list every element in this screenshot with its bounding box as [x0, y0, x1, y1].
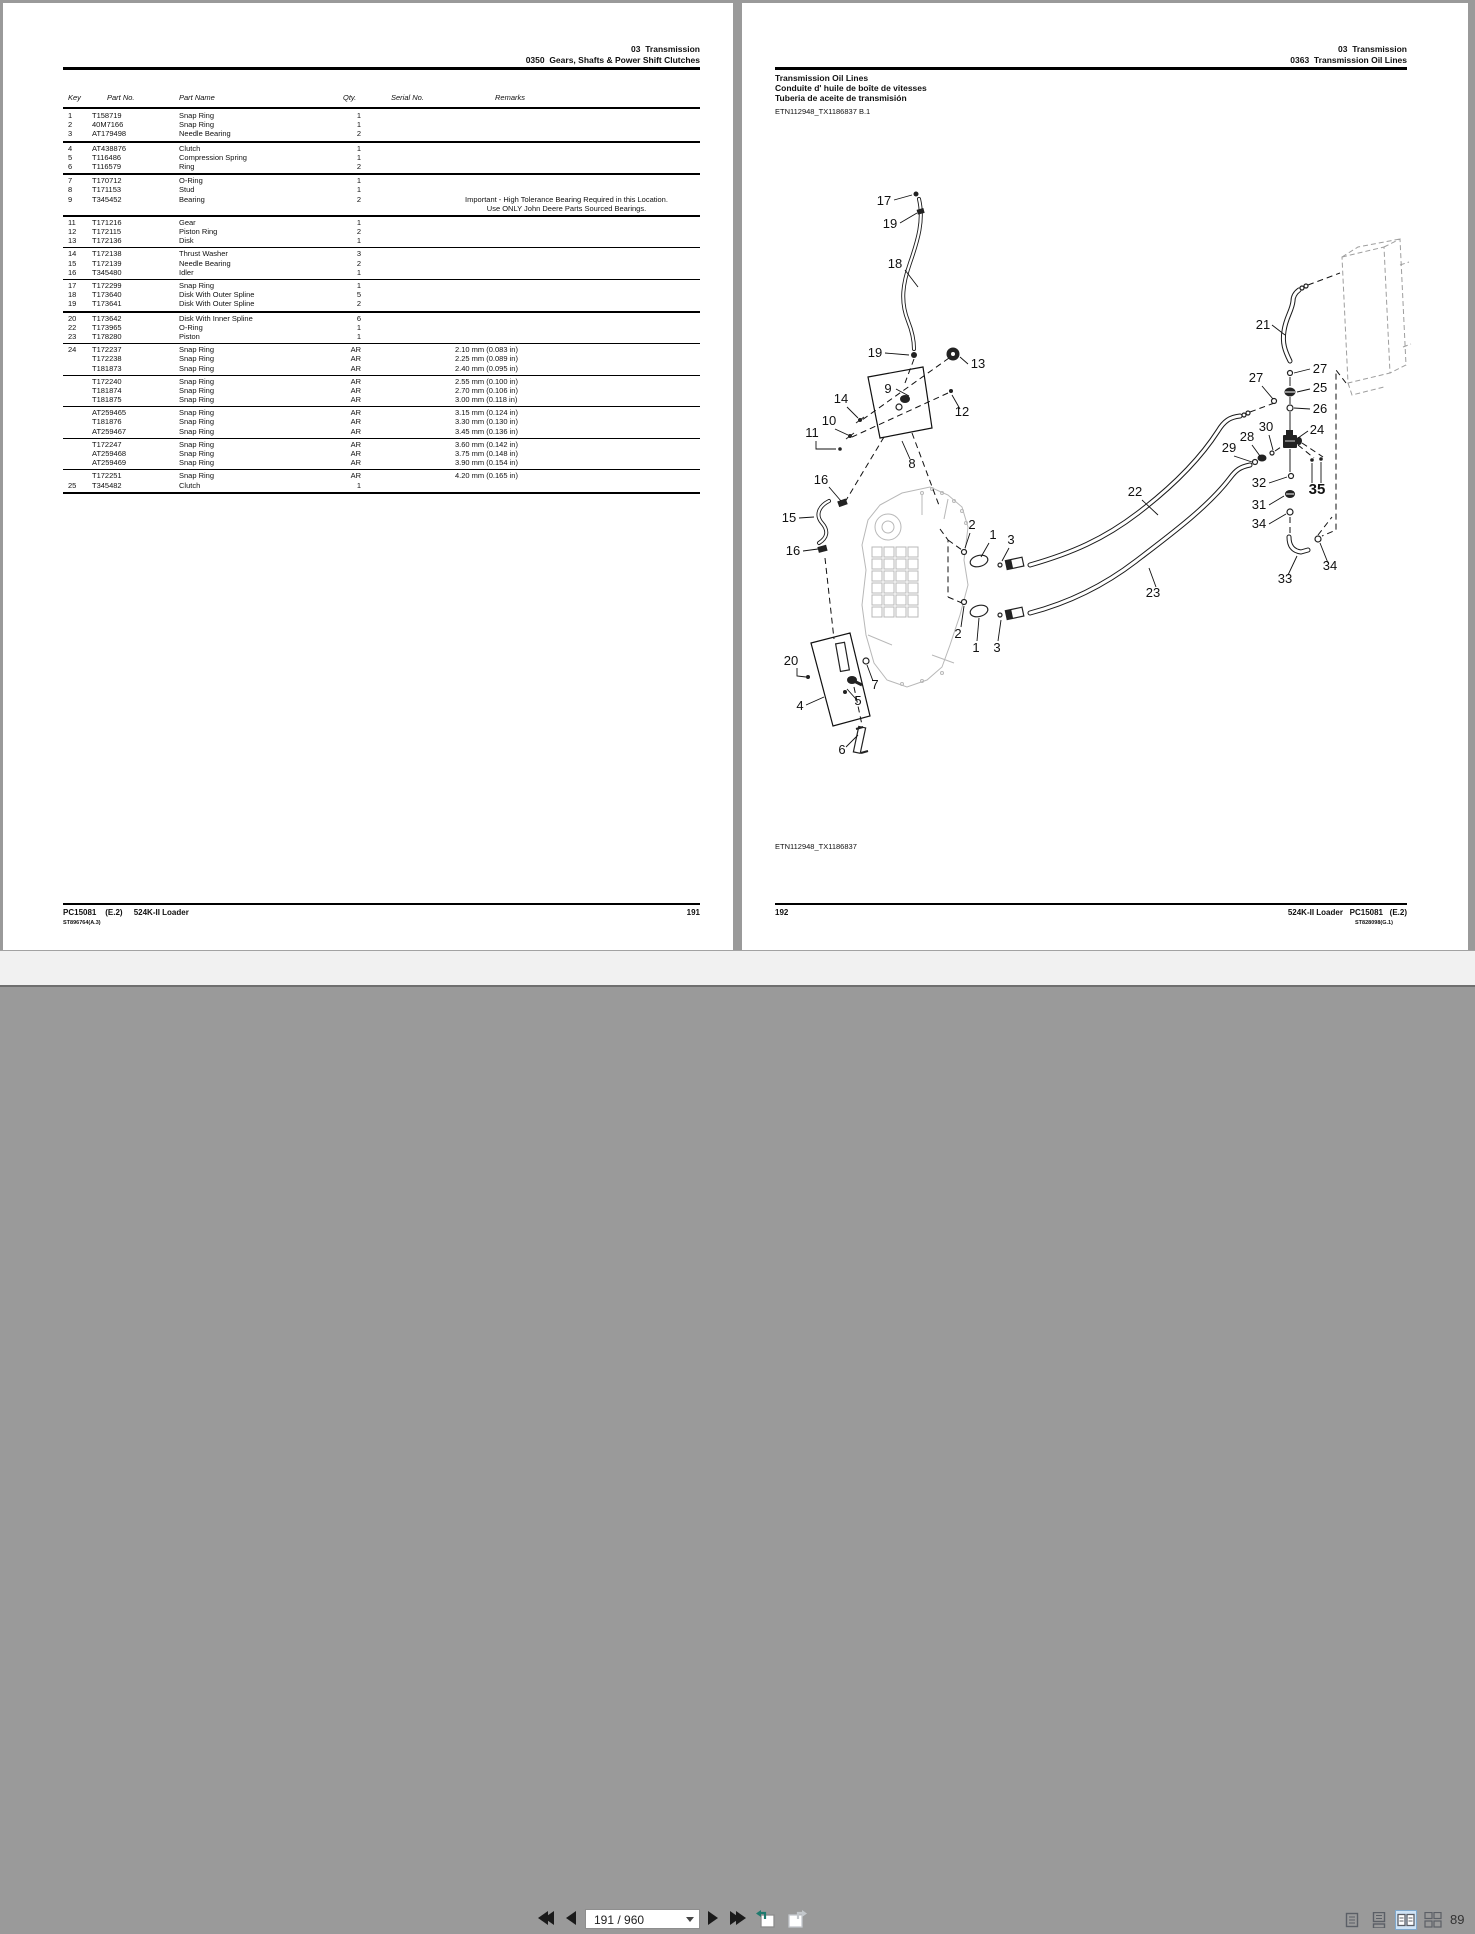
table-cell: 3.45 mm (0.136 in) — [455, 427, 518, 436]
table-cell: AT259469 — [92, 458, 126, 467]
callout-label: 2 — [968, 517, 975, 532]
callout-label: 9 — [884, 381, 891, 396]
table-cell: 2 — [331, 227, 361, 236]
table-cell: 13 — [68, 236, 76, 245]
table-cell: 19 — [68, 299, 76, 308]
table-group: AT259465Snap RingAR3.15 mm (0.124 in)T18… — [63, 407, 700, 439]
table-cell: 15 — [68, 259, 76, 268]
table-cell: 1 — [331, 144, 361, 153]
table-cell: T172237 — [92, 345, 122, 354]
figure-title: Transmission Oil Lines Conduite d' huile… — [775, 73, 927, 103]
table-row: 15T172139Needle Bearing2 — [63, 259, 700, 268]
table-group: 20T173642Disk With Inner Spline622T17396… — [63, 313, 700, 345]
table-row: AT259467Snap RingAR3.45 mm (0.136 in) — [63, 427, 700, 436]
table-row: T181873Snap RingAR2.40 mm (0.095 in) — [63, 364, 700, 373]
table-cell: T172139 — [92, 259, 122, 268]
table-cell: AR — [331, 417, 361, 426]
callout-label: 13 — [971, 356, 985, 371]
table-cell: T170712 — [92, 176, 122, 185]
table-group: T172251Snap RingAR4.20 mm (0.165 in)25T3… — [63, 470, 700, 493]
two-page-view-button[interactable] — [1395, 1910, 1417, 1930]
callout-label: 29 — [1222, 440, 1236, 455]
table-cell: 3.30 mm (0.130 in) — [455, 417, 518, 426]
table-cell: Snap Ring — [179, 386, 214, 395]
viewer-toolbar: 191 / 960 — [0, 950, 1475, 986]
page-header-subsection: 0363 Transmission Oil Lines — [1010, 55, 1407, 65]
table-cell: Snap Ring — [179, 471, 214, 480]
oil-cooler-outline — [1342, 239, 1411, 395]
table-cell: 2.40 mm (0.095 in) — [455, 364, 518, 373]
table-row: T172240Snap RingAR2.55 mm (0.100 in) — [63, 377, 700, 386]
previous-view-button[interactable] — [755, 1909, 779, 1934]
callout-label: 28 — [1240, 429, 1254, 444]
table-cell: T172251 — [92, 471, 122, 480]
table-cell: 14 — [68, 249, 76, 258]
table-cell: 1 — [331, 281, 361, 290]
table-cell: 3 — [331, 249, 361, 258]
table-cell: 12 — [68, 227, 76, 236]
table-cell: 1 — [331, 236, 361, 245]
next-page-icon — [708, 1911, 718, 1925]
col-header-part-name: Part Name — [179, 93, 215, 102]
callout-label: 15 — [782, 510, 796, 525]
table-cell: O-Ring — [179, 176, 203, 185]
table-row: 24T172237Snap RingAR2.10 mm (0.083 in) — [63, 345, 700, 354]
table-cell: 3 — [68, 129, 72, 138]
table-cell: 2.55 mm (0.100 in) — [455, 377, 518, 386]
callout-label: 25 — [1313, 380, 1327, 395]
figure-reference-bottom: ETN112948_TX1186837 — [775, 842, 857, 851]
table-cell: T173965 — [92, 323, 122, 332]
table-cell: Gear — [179, 218, 196, 227]
table-cell: AR — [331, 408, 361, 417]
table-group: 24T172237Snap RingAR2.10 mm (0.083 in)T1… — [63, 344, 700, 376]
continuous-page-icon — [1371, 1912, 1387, 1928]
table-cell: Stud — [179, 185, 194, 194]
table-cell: 1 — [331, 332, 361, 341]
table-cell: 3.00 mm (0.118 in) — [455, 395, 517, 404]
table-cell: T173641 — [92, 299, 122, 308]
table-cell: 2 — [331, 259, 361, 268]
table-cell: AR — [331, 440, 361, 449]
table-cell: Clutch — [179, 481, 200, 490]
table-cell: 1 — [331, 323, 361, 332]
table-cell: Snap Ring — [179, 111, 214, 120]
table-cell: 20 — [68, 314, 76, 323]
chevron-down-icon[interactable] — [686, 1917, 694, 1922]
table-row: 9T345452Bearing2Important - High Toleran… — [63, 195, 700, 213]
table-group: 7T170712O-Ring18T171153Stud19T345452Bear… — [63, 175, 700, 217]
page-header-section: 03 Transmission — [1010, 44, 1407, 54]
table-cell: 6 — [68, 162, 72, 171]
table-row: 17T172299Snap Ring1 — [63, 281, 700, 290]
table-cell: Snap Ring — [179, 364, 214, 373]
table-cell: 3.15 mm (0.124 in) — [455, 408, 518, 417]
footer-stamp: ST828098(G.1) — [1355, 920, 1393, 926]
callout-label: 27 — [1313, 361, 1327, 376]
table-cell: 25 — [68, 481, 76, 490]
table-cell: AT259467 — [92, 427, 126, 436]
table-cell: Piston — [179, 332, 200, 341]
table-row: T172238Snap RingAR2.25 mm (0.089 in) — [63, 354, 700, 363]
callout-label: 5 — [854, 693, 861, 708]
table-row: 8T171153Stud1 — [63, 185, 700, 194]
callout-label: 8 — [908, 456, 915, 471]
table-row: 5T116486Compression Spring1 — [63, 153, 700, 162]
table-cell: 2 — [331, 299, 361, 308]
table-cell: 11 — [68, 218, 76, 227]
table-row: 1T158719Snap Ring1 — [63, 111, 700, 120]
callout-label: 35 — [1309, 481, 1326, 498]
col-header-serial-no: Serial No. — [391, 93, 424, 102]
previous-page-button[interactable] — [566, 1911, 576, 1930]
table-cell: T173640 — [92, 290, 122, 299]
table-cell: Important - High Tolerance Bearing Requi… — [433, 195, 700, 213]
callout-label: 26 — [1313, 401, 1327, 416]
callout-label: 2 — [954, 626, 961, 641]
table-row: 240M7166Snap Ring1 — [63, 120, 700, 129]
callout-label: 18 — [888, 256, 902, 271]
table-cell: T181873 — [92, 364, 122, 373]
table-cell: Needle Bearing — [179, 129, 231, 138]
table-cell: Compression Spring — [179, 153, 247, 162]
table-cell: AT438876 — [92, 144, 126, 153]
table-cell: Idler — [179, 268, 194, 277]
detail-box-8 — [868, 367, 932, 438]
page-divider-notch — [733, 1901, 742, 1909]
table-cell: T171216 — [92, 218, 122, 227]
callout-label: 19 — [883, 216, 897, 231]
assembly-dashed-lines — [825, 273, 1346, 725]
table-row: AT259465Snap RingAR3.15 mm (0.124 in) — [63, 408, 700, 417]
table-cell: T345452 — [92, 195, 122, 204]
table-cell: 2 — [331, 195, 361, 204]
table-cell: T116486 — [92, 153, 121, 162]
table-cell: 3.75 mm (0.148 in) — [455, 449, 518, 458]
callout-label: 11 — [805, 425, 819, 440]
table-row: 13T172136Disk1 — [63, 236, 700, 245]
callout-label: 10 — [822, 413, 836, 428]
table-cell: Snap Ring — [179, 281, 214, 290]
table-cell: T172138 — [92, 249, 122, 258]
callout-label: 3 — [993, 640, 1000, 655]
table-cell: 8 — [68, 185, 72, 194]
table-cell: 5 — [331, 290, 361, 299]
callout-label: 32 — [1252, 475, 1266, 490]
page-number-input[interactable]: 191 / 960 — [585, 1909, 700, 1929]
table-cell: Snap Ring — [179, 408, 214, 417]
table-cell: 24 — [68, 345, 76, 354]
footer-doc-info: 524K-II Loader PC15081 (E.2) — [1107, 908, 1407, 917]
small-parts — [806, 192, 1323, 754]
callout-label: 6 — [838, 742, 845, 757]
table-cell: Bearing — [179, 195, 205, 204]
table-cell: 1 — [331, 481, 361, 490]
table-cell: T172299 — [92, 281, 122, 290]
table-group: T172247Snap RingAR3.60 mm (0.142 in)AT25… — [63, 439, 700, 471]
footer-doc-info: PC15081 (E.2) 524K-II Loader — [63, 908, 189, 917]
table-row: 22T173965O-Ring1 — [63, 323, 700, 332]
table-cell: 4.20 mm (0.165 in) — [455, 471, 518, 480]
table-cell: AR — [331, 364, 361, 373]
table-group: 17T172299Snap Ring118T173640Disk With Ou… — [63, 280, 700, 313]
table-row: 6T116579Ring2 — [63, 162, 700, 171]
table-row: T181876Snap RingAR3.30 mm (0.130 in) — [63, 417, 700, 426]
table-cell: AR — [331, 377, 361, 386]
table-group: T172240Snap RingAR2.55 mm (0.100 in)T181… — [63, 376, 700, 408]
table-cell: 17 — [68, 281, 76, 290]
table-cell: AT259468 — [92, 449, 126, 458]
table-cell: T345480 — [92, 268, 122, 277]
table-row: 4AT438876Clutch1 — [63, 144, 700, 153]
table-cell: 2 — [68, 120, 72, 129]
table-group: 11T171216Gear112T172115Piston Ring213T17… — [63, 217, 700, 249]
table-cell: Thrust Washer — [179, 249, 228, 258]
figure-title-en: Transmission Oil Lines — [775, 73, 927, 83]
table-cell: 22 — [68, 323, 76, 332]
single-page-icon — [1344, 1912, 1360, 1928]
table-cell: Snap Ring — [179, 345, 214, 354]
table-cell: Needle Bearing — [179, 259, 231, 268]
table-row: 12T172115Piston Ring2 — [63, 227, 700, 236]
table-cell: Snap Ring — [179, 377, 214, 386]
callout-label: 24 — [1310, 422, 1324, 437]
table-cell: Disk — [179, 236, 194, 245]
table-cell: AR — [331, 345, 361, 354]
callout-label: 16 — [814, 472, 828, 487]
zoom-level-value[interactable]: 89 — [1450, 1912, 1464, 1927]
table-cell: T172247 — [92, 440, 122, 449]
table-row: 11T171216Gear1 — [63, 218, 700, 227]
callout-label: 30 — [1259, 419, 1273, 434]
table-cell: T172136 — [92, 236, 122, 245]
table-cell: T172115 — [92, 227, 121, 236]
page-192: 03 Transmission 0363 Transmission Oil Li… — [742, 3, 1468, 950]
callout-label: 21 — [1256, 317, 1270, 332]
table-cell: 1 — [331, 268, 361, 277]
table-cell: AR — [331, 471, 361, 480]
table-cell: Snap Ring — [179, 427, 214, 436]
callout-label: 19 — [868, 345, 882, 360]
single-page-view-button[interactable] — [1341, 1910, 1363, 1930]
table-top-rule — [63, 107, 700, 109]
table-cell: 2 — [331, 129, 361, 138]
table-group: 14T172138Thrust Washer315T172139Needle B… — [63, 248, 700, 280]
callout-label: 1 — [989, 527, 996, 542]
table-cell: T181874 — [92, 386, 122, 395]
table-cell: AT259465 — [92, 408, 126, 417]
callout-label: 1 — [972, 640, 979, 655]
figure-title-es: Tuberia de aceite de transmisión — [775, 93, 927, 103]
table-cell: AR — [331, 427, 361, 436]
table-cell: O-Ring — [179, 323, 203, 332]
table-cell: Disk With Outer Spline — [179, 299, 254, 308]
table-cell: 7 — [68, 176, 72, 185]
table-cell: 2 — [331, 162, 361, 171]
callout-label: 12 — [955, 404, 969, 419]
previous-page-icon — [566, 1911, 576, 1925]
first-page-button[interactable] — [538, 1911, 554, 1930]
table-cell: Snap Ring — [179, 395, 214, 404]
table-cell: Snap Ring — [179, 440, 214, 449]
table-cell: T345482 — [92, 481, 122, 490]
footer-stamp: ST896764(A.3) — [63, 920, 101, 926]
table-cell: 2.70 mm (0.106 in) — [455, 386, 518, 395]
table-cell: 2.25 mm (0.089 in) — [455, 354, 518, 363]
table-cell: AR — [331, 354, 361, 363]
table-cell: Snap Ring — [179, 417, 214, 426]
table-cell: T173642 — [92, 314, 122, 323]
transmission-housing-art — [862, 487, 968, 687]
table-cell: Snap Ring — [179, 449, 214, 458]
table-cell: Snap Ring — [179, 120, 214, 129]
header-rule — [775, 67, 1407, 70]
table-cell: T172240 — [92, 377, 122, 386]
col-header-key: Key — [68, 93, 81, 102]
table-cell: 23 — [68, 332, 76, 341]
next-view-icon — [784, 1909, 808, 1929]
callout-label: 34 — [1323, 558, 1337, 573]
callout-label: 17 — [877, 193, 891, 208]
callout-label: 33 — [1278, 571, 1292, 586]
callout-label: 14 — [834, 391, 848, 406]
callout-label: 22 — [1128, 484, 1142, 499]
previous-view-icon — [755, 1909, 779, 1929]
table-cell: AR — [331, 386, 361, 395]
table-row: AT259468Snap RingAR3.75 mm (0.148 in) — [63, 449, 700, 458]
table-row: 18T173640Disk With Outer Spline5 — [63, 290, 700, 299]
continuous-view-button[interactable] — [1368, 1910, 1390, 1930]
table-cell: 16 — [68, 268, 76, 277]
table-cell: Snap Ring — [179, 354, 214, 363]
table-row: 23T178280Piston1 — [63, 332, 700, 341]
page-191: 03 Transmission 0350 Gears, Shafts & Pow… — [3, 3, 733, 950]
callout-label: 20 — [784, 653, 798, 668]
table-cell: Disk With Outer Spline — [179, 290, 254, 299]
table-cell: Piston Ring — [179, 227, 217, 236]
two-page-continuous-view-button[interactable] — [1422, 1910, 1444, 1930]
page-header-subsection: 0350 Gears, Shafts & Power Shift Clutche… — [303, 55, 700, 65]
table-cell: AT179498 — [92, 129, 126, 138]
table-cell: 5 — [68, 153, 72, 162]
table-row: 20T173642Disk With Inner Spline6 — [63, 314, 700, 323]
table-cell: 18 — [68, 290, 76, 299]
figure-title-fr: Conduite d' huile de boîte de vitesses — [775, 83, 927, 93]
table-cell: 1 — [68, 111, 72, 120]
table-row: AT259469Snap RingAR3.90 mm (0.154 in) — [63, 458, 700, 467]
table-cell: 1 — [331, 120, 361, 129]
table-row: 7T170712O-Ring1 — [63, 176, 700, 185]
footer-rule — [63, 903, 700, 905]
table-group: 1T158719Snap Ring1240M7166Snap Ring13AT1… — [63, 110, 700, 143]
table-cell: 3.90 mm (0.154 in) — [455, 458, 518, 467]
table-row: 19T173641Disk With Outer Spline2 — [63, 299, 700, 308]
table-row: T181874Snap RingAR2.70 mm (0.106 in) — [63, 386, 700, 395]
last-page-icon-2 — [736, 1911, 746, 1925]
table-row: T172247Snap RingAR3.60 mm (0.142 in) — [63, 440, 700, 449]
table-cell: Ring — [179, 162, 194, 171]
table-group: 4AT438876Clutch15T116486Compression Spri… — [63, 143, 700, 176]
table-cell: 1 — [331, 176, 361, 185]
table-cell: 9 — [68, 195, 72, 204]
table-cell: Snap Ring — [179, 458, 214, 467]
table-cell: T181875 — [92, 395, 122, 404]
callout-label: 23 — [1146, 585, 1160, 600]
table-row: 25T345482Clutch1 — [63, 481, 700, 490]
last-page-button[interactable] — [730, 1911, 746, 1930]
table-cell: T181876 — [92, 417, 122, 426]
first-page-icon-2 — [544, 1911, 554, 1925]
table-row: T181875Snap RingAR3.00 mm (0.118 in) — [63, 395, 700, 404]
footer-page-number: 191 — [603, 908, 700, 917]
callout-label: 34 — [1252, 516, 1266, 531]
table-cell: 1 — [331, 218, 361, 227]
page-header-section: 03 Transmission — [303, 44, 700, 54]
table-row: 16T345480Idler1 — [63, 268, 700, 277]
callout-label: 4 — [796, 698, 803, 713]
table-cell: AR — [331, 458, 361, 467]
table-cell: 40M7166 — [92, 120, 123, 129]
table-cell: T172238 — [92, 354, 122, 363]
two-page-icon — [1397, 1912, 1415, 1928]
footer-page-number: 192 — [775, 908, 788, 917]
table-cell: 6 — [331, 314, 361, 323]
callout-leader-lines — [797, 195, 1328, 747]
table-cell: Clutch — [179, 144, 200, 153]
callout-label: 7 — [871, 677, 878, 692]
table-cell: T116579 — [92, 162, 121, 171]
table-cell: 1 — [331, 185, 361, 194]
table-row: 14T172138Thrust Washer3 — [63, 249, 700, 258]
callout-label: 16 — [786, 543, 800, 558]
callout-label: 3 — [1007, 532, 1014, 547]
table-cell: 3.60 mm (0.142 in) — [455, 440, 518, 449]
table-cell: 1 — [331, 153, 361, 162]
table-cell: Disk With Inner Spline — [179, 314, 253, 323]
next-page-button[interactable] — [708, 1911, 718, 1930]
table-cell: AR — [331, 395, 361, 404]
table-cell: 4 — [68, 144, 72, 153]
footer-rule — [775, 903, 1407, 905]
table-cell: T171153 — [92, 185, 121, 194]
table-cell: AR — [331, 449, 361, 458]
col-header-part-no: Part No. — [107, 93, 135, 102]
exploded-parts-diagram: 1719181913914121011816151620457621321322… — [772, 115, 1432, 863]
table-cell: 1 — [331, 111, 361, 120]
header-rule — [63, 67, 700, 70]
two-page-continuous-icon — [1424, 1912, 1442, 1928]
col-header-qty: Qty. — [343, 93, 356, 102]
table-cell: T178280 — [92, 332, 122, 341]
table-row: T172251Snap RingAR4.20 mm (0.165 in) — [63, 471, 700, 480]
oil-hoses — [1030, 416, 1250, 613]
next-view-button[interactable] — [784, 1909, 808, 1934]
table-cell: 2.10 mm (0.083 in) — [455, 345, 518, 354]
table-row: 3AT179498Needle Bearing2 — [63, 129, 700, 138]
callout-label: 27 — [1249, 370, 1263, 385]
col-header-remarks: Remarks — [495, 93, 525, 102]
table-cell: T158719 — [92, 111, 122, 120]
callout-label: 31 — [1252, 497, 1266, 512]
parts-table: 1T158719Snap Ring1240M7166Snap Ring13AT1… — [63, 110, 700, 494]
